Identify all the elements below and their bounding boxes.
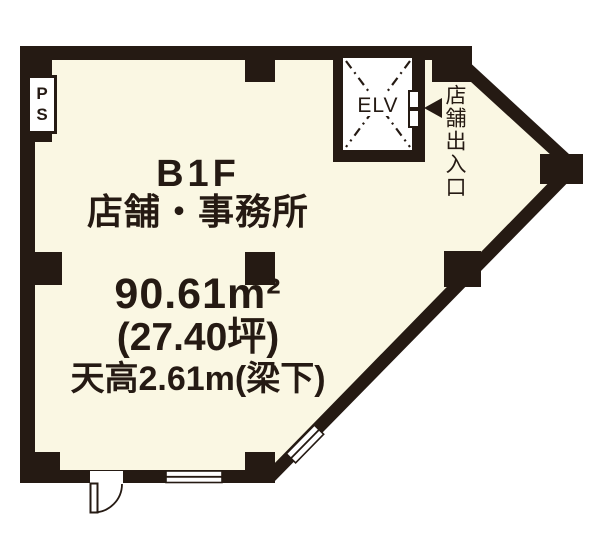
column-diagonal-wall [444, 251, 481, 287]
elevator-label: ELV [351, 95, 405, 116]
floorplan-canvas: PS ELV 店舗出入口 B1F 店舗・事務所 90.61m² (27.40坪)… [0, 0, 600, 540]
window-bottom-wall [166, 471, 222, 483]
column-bottom-left-corner [20, 452, 60, 483]
column-top [245, 46, 275, 82]
column-right-vertex [540, 154, 583, 184]
floor-title: B1F [8, 155, 388, 193]
elevator-door-panel-lower [409, 110, 419, 127]
elevator-door-panel-upper [409, 91, 419, 108]
pipe-shaft-label: PS [34, 84, 51, 126]
floorplan-drawing [0, 0, 600, 540]
entrance-label: 店舗出入口 [444, 84, 465, 214]
door-opening [90, 471, 123, 484]
pipe-shaft-box: PS [27, 75, 57, 134]
door-leaf [91, 484, 98, 513]
column-top-right-corner [432, 46, 472, 82]
door-bottom [90, 471, 123, 513]
area-sqm-label: 90.61m² [8, 273, 388, 316]
column-bottom-wall [245, 452, 275, 483]
area-tsubo-label: (27.40坪) [8, 318, 388, 357]
ceiling-height-label: 天高2.61m(梁下) [8, 362, 388, 396]
usage-title: 店舗・事務所 [8, 194, 388, 230]
